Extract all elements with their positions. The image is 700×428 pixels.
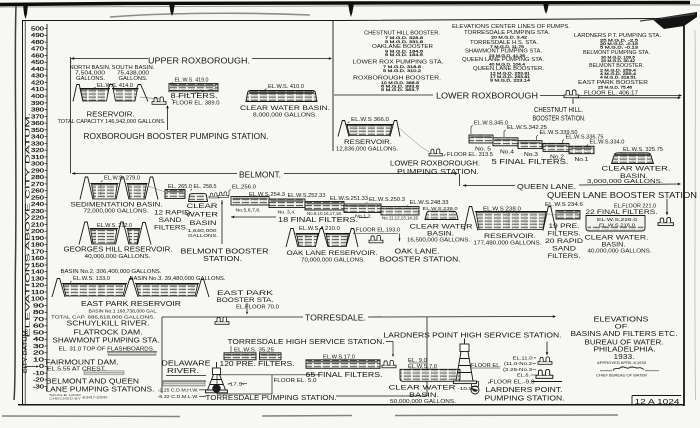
svg-text:6 M.G.D. 184.6: 6 M.G.D. 184.6 [385, 52, 424, 57]
svg-text:EL.W.S. 279.0: EL.W.S. 279.0 [104, 176, 140, 182]
svg-text:FILTERS.: FILTERS. [154, 225, 188, 232]
svg-text:EL.W.S.334.0: EL.W.S.334.0 [590, 140, 625, 146]
svg-text:380: 380 [31, 108, 44, 114]
svg-text:16,500,000 GALLONS.: 16,500,000 GALLONS. [407, 237, 470, 243]
svg-text:400: 400 [31, 94, 44, 100]
svg-text:72,000,000 GALLONS.: 72,000,000 GALLONS. [84, 209, 149, 215]
svg-text:FAIRMOUNT DAM.: FAIRMOUNT DAM. [46, 358, 119, 367]
svg-text:GALLONS.: GALLONS. [119, 76, 148, 82]
svg-text:LARDNERS POINT HIGH SERVICE ST: LARDNERS POINT HIGH SERVICE STATION. [384, 332, 562, 339]
svg-text:STATION.: STATION. [203, 254, 242, 263]
svg-text:QUEEN LANE.: QUEEN LANE. [517, 182, 576, 191]
svg-text:OAK LANE RESERVOIR.: OAK LANE RESERVOIR. [287, 250, 378, 257]
svg-text:UPPER ROXBOROUGH.: UPPER ROXBOROUGH. [148, 57, 250, 66]
svg-text:110: 110 [31, 290, 44, 296]
svg-text:200: 200 [31, 229, 44, 235]
svg-text:-20: -20 [33, 378, 44, 384]
svg-text:EL.6.: EL.6. [517, 372, 530, 378]
svg-text:5 M.G.D. 363.7: 5 M.G.D. 363.7 [381, 87, 420, 92]
svg-text:40,000,000 GALLONS.: 40,000,000 GALLONS. [588, 248, 652, 254]
svg-text:GEORGES HILL RESERVOIR.: GEORGES HILL RESERVOIR. [64, 247, 173, 254]
svg-text:GALLONS.: GALLONS. [76, 76, 105, 82]
svg-text:EL.W.S.226.0: EL.W.S.226.0 [597, 217, 637, 223]
svg-text:EL.W.S. 325.75: EL.W.S. 325.75 [623, 147, 663, 153]
svg-text:EL.W.S.251.33: EL.W.S.251.33 [330, 196, 368, 202]
svg-text:480: 480 [31, 40, 44, 46]
svg-text:EL.W.S. 419.0: EL.W.S. 419.0 [175, 78, 209, 84]
svg-text:SHAWMONT PUMPING STA.: SHAWMONT PUMPING STA. [53, 337, 160, 344]
svg-text:EAST PARK RESERVOIR: EAST PARK RESERVOIR [81, 301, 181, 308]
svg-text:50,000,000 GALLONS.: 50,000,000 GALLONS. [390, 399, 456, 405]
svg-text:FLOOR EL. 313.5: FLOOR EL. 313.5 [447, 152, 493, 158]
svg-text:PHILADELPHIA.: PHILADELPHIA. [594, 347, 656, 354]
svg-text:EL. 258.5: EL. 258.5 [194, 184, 217, 190]
svg-text:450: 450 [31, 60, 44, 66]
svg-text:LANE PUMPING STATIONS.: LANE PUMPING STATIONS. [46, 384, 155, 393]
svg-text:TORRESDALE HIGH SERVICE STATIO: TORRESDALE HIGH SERVICE STATION. [228, 339, 385, 346]
svg-text:180: 180 [31, 243, 44, 249]
svg-text:BASIN.: BASIN. [409, 392, 439, 399]
svg-text:500: 500 [31, 27, 44, 33]
svg-text:CLEAR WATER.: CLEAR WATER. [585, 234, 649, 241]
svg-text:FILTERS.: FILTERS. [548, 231, 581, 238]
svg-text:260: 260 [31, 189, 44, 195]
svg-text:50: 50 [33, 330, 44, 336]
svg-text:No.1: No.1 [575, 157, 589, 163]
svg-text:CLEAR WATER BASIN.: CLEAR WATER BASIN. [240, 105, 330, 112]
svg-text:RIVER.: RIVER. [167, 368, 199, 375]
svg-text:BASIN No.1 160,738,000 GAL.: BASIN No.1 160,738,000 GAL. [89, 308, 158, 313]
svg-text:EL.W.S 234.6: EL.W.S 234.6 [545, 202, 583, 208]
svg-text:RESERVOIR.: RESERVOIR. [344, 139, 392, 146]
svg-text:22 FINAL FILTERS.: 22 FINAL FILTERS. [586, 209, 658, 216]
svg-text:FLATROCK DAM.: FLATROCK DAM. [74, 329, 143, 336]
svg-text:30: 30 [33, 344, 44, 350]
svg-text:340: 340 [31, 135, 44, 141]
svg-text:No.11,12,13,14,15: No.11,12,13,14,15 [382, 215, 419, 220]
svg-text:BASINS AND FILTERS ETC.: BASINS AND FILTERS ETC. [571, 331, 678, 338]
svg-text:280: 280 [31, 175, 44, 181]
svg-text:CHESTNUT HILL.: CHESTNUT HILL. [534, 107, 583, 114]
svg-text:No.5,6,7,8.: No.5,6,7,8. [236, 207, 261, 213]
svg-text:8 FILTERS.: 8 FILTERS. [171, 91, 218, 100]
svg-text:-17.5-: -17.5- [228, 381, 246, 387]
svg-text:ELEVATIONS ABOVE CITY DATUM: ELEVATIONS ABOVE CITY DATUM. [26, 112, 32, 338]
svg-text:360: 360 [31, 121, 44, 127]
svg-text:20: 20 [33, 351, 44, 357]
svg-text:(2.25-No.3: (2.25-No.3 [503, 367, 532, 373]
svg-text:LOWER ROXBOROUGH: LOWER ROXBOROUGH [436, 92, 538, 101]
svg-text:B.8417-3/2/42: B.8417-3/2/42 [83, 396, 108, 400]
svg-text:70,000,000 GALLONS.: 70,000,000 GALLONS. [301, 258, 365, 264]
svg-text:-30: -30 [33, 385, 44, 391]
svg-text:10: 10 [33, 357, 44, 363]
svg-text:40,000,000 GALLONS.: 40,000,000 GALLONS. [85, 254, 151, 260]
svg-text:EL.W.S.250.3: EL.W.S.250.3 [369, 197, 405, 203]
svg-text:ROXBOROUGH BOOSTER PUMPING: ROXBOROUGH BOOSTER PUMPING STATION. [84, 132, 269, 141]
svg-text:390: 390 [31, 101, 44, 107]
svg-text:TORRESDALE PUMPING STATION.: TORRESDALE PUMPING STATION. [206, 393, 337, 402]
svg-text:100: 100 [31, 297, 44, 303]
svg-text:SAND: SAND [552, 246, 576, 253]
svg-text:FLOOR EL. 389.0: FLOOR EL. 389.0 [173, 100, 220, 106]
svg-text:8,000,000 GALLONS.: 8,000,000 GALLONS. [253, 112, 317, 118]
svg-text:140: 140 [31, 270, 44, 276]
svg-text:3,000,000 GALLONS.: 3,000,000 GALLONS. [587, 179, 663, 185]
svg-text:FLOOR EL.193.0: FLOOR EL.193.0 [356, 228, 400, 234]
svg-text:No. 5: No. 5 [475, 147, 491, 153]
svg-text:290: 290 [31, 168, 44, 174]
svg-text:EL.256.0: EL.256.0 [232, 185, 256, 191]
svg-text:-10.5: -10.5 [458, 386, 473, 392]
svg-text:PUMPING STATION.: PUMPING STATION. [397, 167, 479, 176]
svg-text:430: 430 [31, 74, 44, 80]
svg-text:370: 370 [31, 114, 44, 120]
svg-text:TOTAL CAP. 686,618,000 GALLONS: TOTAL CAP. 686,618,000 GALLONS. [51, 314, 155, 320]
svg-text:FILTERS.: FILTERS. [548, 253, 581, 260]
svg-text:190: 190 [31, 236, 44, 242]
svg-text:BUREAU OF WATER.: BUREAU OF WATER. [585, 339, 664, 346]
svg-text:25 M.G.D. 75.46: 25 M.G.D. 75.46 [598, 84, 633, 89]
svg-text:BASIN No.3. 39,480,000 GALLONS: BASIN No.3. 39,480,000 GALLONS. [130, 276, 226, 282]
svg-text:EL.W.S.248.33: EL.W.S.248.33 [410, 200, 449, 206]
svg-text:BASIN: BASIN [190, 220, 217, 227]
svg-text:EL.W.S. 133.0: EL.W.S. 133.0 [73, 276, 110, 282]
svg-text:12 A 1024: 12 A 1024 [635, 397, 680, 406]
svg-text:120: 120 [31, 283, 44, 289]
svg-text:120 PRE. FILTERS.: 120 PRE. FILTERS. [220, 361, 295, 368]
svg-text:TORRESDALE.: TORRESDALE. [305, 314, 366, 323]
svg-text:ELEVATIONS: ELEVATIONS [594, 314, 649, 323]
svg-text:(11.0-No.2: (11.0-No.2 [504, 361, 532, 367]
svg-text:CLEAR WATER: CLEAR WATER [389, 385, 456, 392]
svg-text:19 PRE.: 19 PRE. [549, 223, 580, 230]
svg-text:90: 90 [33, 303, 44, 309]
svg-text:330: 330 [31, 141, 44, 147]
svg-text:70: 70 [33, 317, 44, 323]
svg-text:5 FINAL FILTERS.: 5 FINAL FILTERS. [492, 157, 569, 166]
svg-text:OF: OF [615, 324, 628, 331]
svg-text:EL.W.S. 410.0: EL.W.S. 410.0 [268, 84, 304, 90]
svg-text:EAST PARK: EAST PARK [217, 290, 274, 297]
svg-text:460: 460 [31, 54, 44, 60]
svg-text:RESERVOIR.: RESERVOIR. [87, 110, 135, 119]
svg-text:60: 60 [33, 324, 44, 330]
svg-text:BASIN No.2. 306,400,000 GALLON: BASIN No.2. 306,400,000 GALLONS. [61, 269, 162, 275]
svg-text:EL.11.0: EL.11.0 [513, 355, 533, 361]
svg-text:150: 150 [31, 263, 44, 269]
svg-text:240: 240 [31, 202, 44, 208]
svg-text:210: 210 [31, 222, 44, 228]
svg-text:18 FINAL FILTERS.: 18 FINAL FILTERS. [278, 215, 358, 224]
svg-text:40: 40 [33, 337, 44, 343]
svg-text:DELAWARE: DELAWARE [162, 360, 212, 367]
svg-text:BOOSTER STATION.: BOOSTER STATION. [533, 115, 586, 122]
svg-text:SCHUYLKILL RIVER.: SCHUYLKILL RIVER. [67, 321, 150, 328]
svg-text:APPROVED APRIL 6.1933: APPROVED APRIL 6.1933 [597, 361, 646, 365]
svg-text:EL.W.S.345.0: EL.W.S.345.0 [474, 121, 508, 127]
svg-text:160: 160 [31, 256, 44, 262]
svg-text:FLOOR EL. 406.17: FLOOR EL. 406.17 [584, 91, 638, 97]
svg-text:177,480,000 GALLONS.: 177,480,000 GALLONS. [474, 240, 542, 246]
svg-text:CHIEF BUREAU OF WATER: CHIEF BUREAU OF WATER [596, 373, 647, 377]
svg-text:440: 440 [31, 67, 44, 73]
svg-text:490: 490 [31, 33, 44, 39]
svg-text:1933.: 1933. [614, 354, 635, 361]
svg-text:0: 0 [39, 364, 44, 370]
svg-text:SEDIMENTATION BASIN.: SEDIMENTATION BASIN. [71, 201, 163, 208]
svg-text:320: 320 [31, 148, 44, 154]
svg-text:No.4: No.4 [500, 149, 514, 155]
svg-text:420: 420 [31, 81, 44, 87]
svg-text:12,836,000 GALLONS.: 12,836,000 GALLONS. [336, 146, 398, 152]
svg-text:5 M.G.D. 310.2: 5 M.G.D. 310.2 [383, 68, 422, 73]
svg-text:65 FINAL FILTERS.: 65 FINAL FILTERS. [306, 372, 383, 379]
svg-text:130: 130 [31, 276, 44, 282]
svg-text:EL.W.S.: EL.W.S. [299, 226, 320, 232]
svg-text:12 RAPID: 12 RAPID [154, 210, 190, 217]
svg-text:BELMONT.: BELMONT. [239, 171, 281, 180]
svg-text:QUEEN LANE BOOSTER STATION: QUEEN LANE BOOSTER STATION [547, 191, 697, 200]
svg-text:EL.W.S.252.33: EL.W.S.252.33 [288, 193, 326, 199]
svg-text:GALLONS.: GALLONS. [188, 233, 218, 239]
svg-text:EL.W.S. 414.0: EL.W.S. 414.0 [97, 83, 133, 89]
svg-text:470: 470 [31, 47, 44, 53]
svg-text:270: 270 [31, 182, 44, 188]
svg-text:-10: -10 [33, 371, 44, 377]
svg-text:WATER: WATER [186, 212, 218, 219]
svg-text:BOOSTER STATION.: BOOSTER STATION. [380, 254, 461, 263]
svg-text:300: 300 [31, 162, 44, 168]
svg-text:SAND: SAND [159, 217, 182, 224]
svg-text:EL.W.S 366.0: EL.W.S 366.0 [351, 117, 389, 123]
svg-text:230: 230 [31, 209, 44, 215]
svg-text:-8.32 C.D.M.L.W.: -8.32 C.D.M.L.W. [158, 394, 199, 400]
svg-text:250: 250 [31, 195, 44, 201]
svg-text:CLEAR WATER.: CLEAR WATER. [602, 166, 671, 173]
svg-text:220: 220 [31, 216, 44, 222]
svg-text:210.0: 210.0 [325, 226, 340, 232]
svg-text:350: 350 [31, 128, 44, 134]
svg-text:5 M.G.D. -0.13: 5 M.G.D. -0.13 [600, 45, 639, 50]
svg-text:-2.25 C.D.M.H.W.: -2.25 C.D.M.H.W. [158, 388, 199, 394]
svg-text:PUMPING STATION.: PUMPING STATION. [485, 393, 565, 402]
svg-text:80: 80 [33, 310, 44, 316]
svg-text:170: 170 [31, 249, 44, 255]
svg-text:20 RAPID: 20 RAPID [545, 238, 583, 245]
svg-text:EL.W.S.216.0: EL.W.S.216.0 [599, 222, 635, 228]
svg-text:RESERVOIR.: RESERVOIR. [484, 233, 536, 240]
svg-text:410: 410 [31, 87, 44, 93]
svg-text:CHECKED BY: CHECKED BY [49, 397, 81, 401]
svg-text:EL.FLOOR 70.0: EL.FLOOR 70.0 [236, 304, 279, 310]
svg-text:TOTAL CAPACITY 146,942,000 GAL: TOTAL CAPACITY 146,942,000 GALLONS. [58, 119, 166, 125]
svg-text:CLEAR: CLEAR [187, 203, 218, 210]
svg-text:BOOSTER STA.: BOOSTER STA. [217, 297, 274, 304]
svg-text:9 M.G.D. 223.14: 9 M.G.D. 223.14 [490, 78, 531, 83]
svg-text:310: 310 [31, 155, 44, 161]
svg-text:CLEAR WATER: CLEAR WATER [410, 223, 473, 230]
